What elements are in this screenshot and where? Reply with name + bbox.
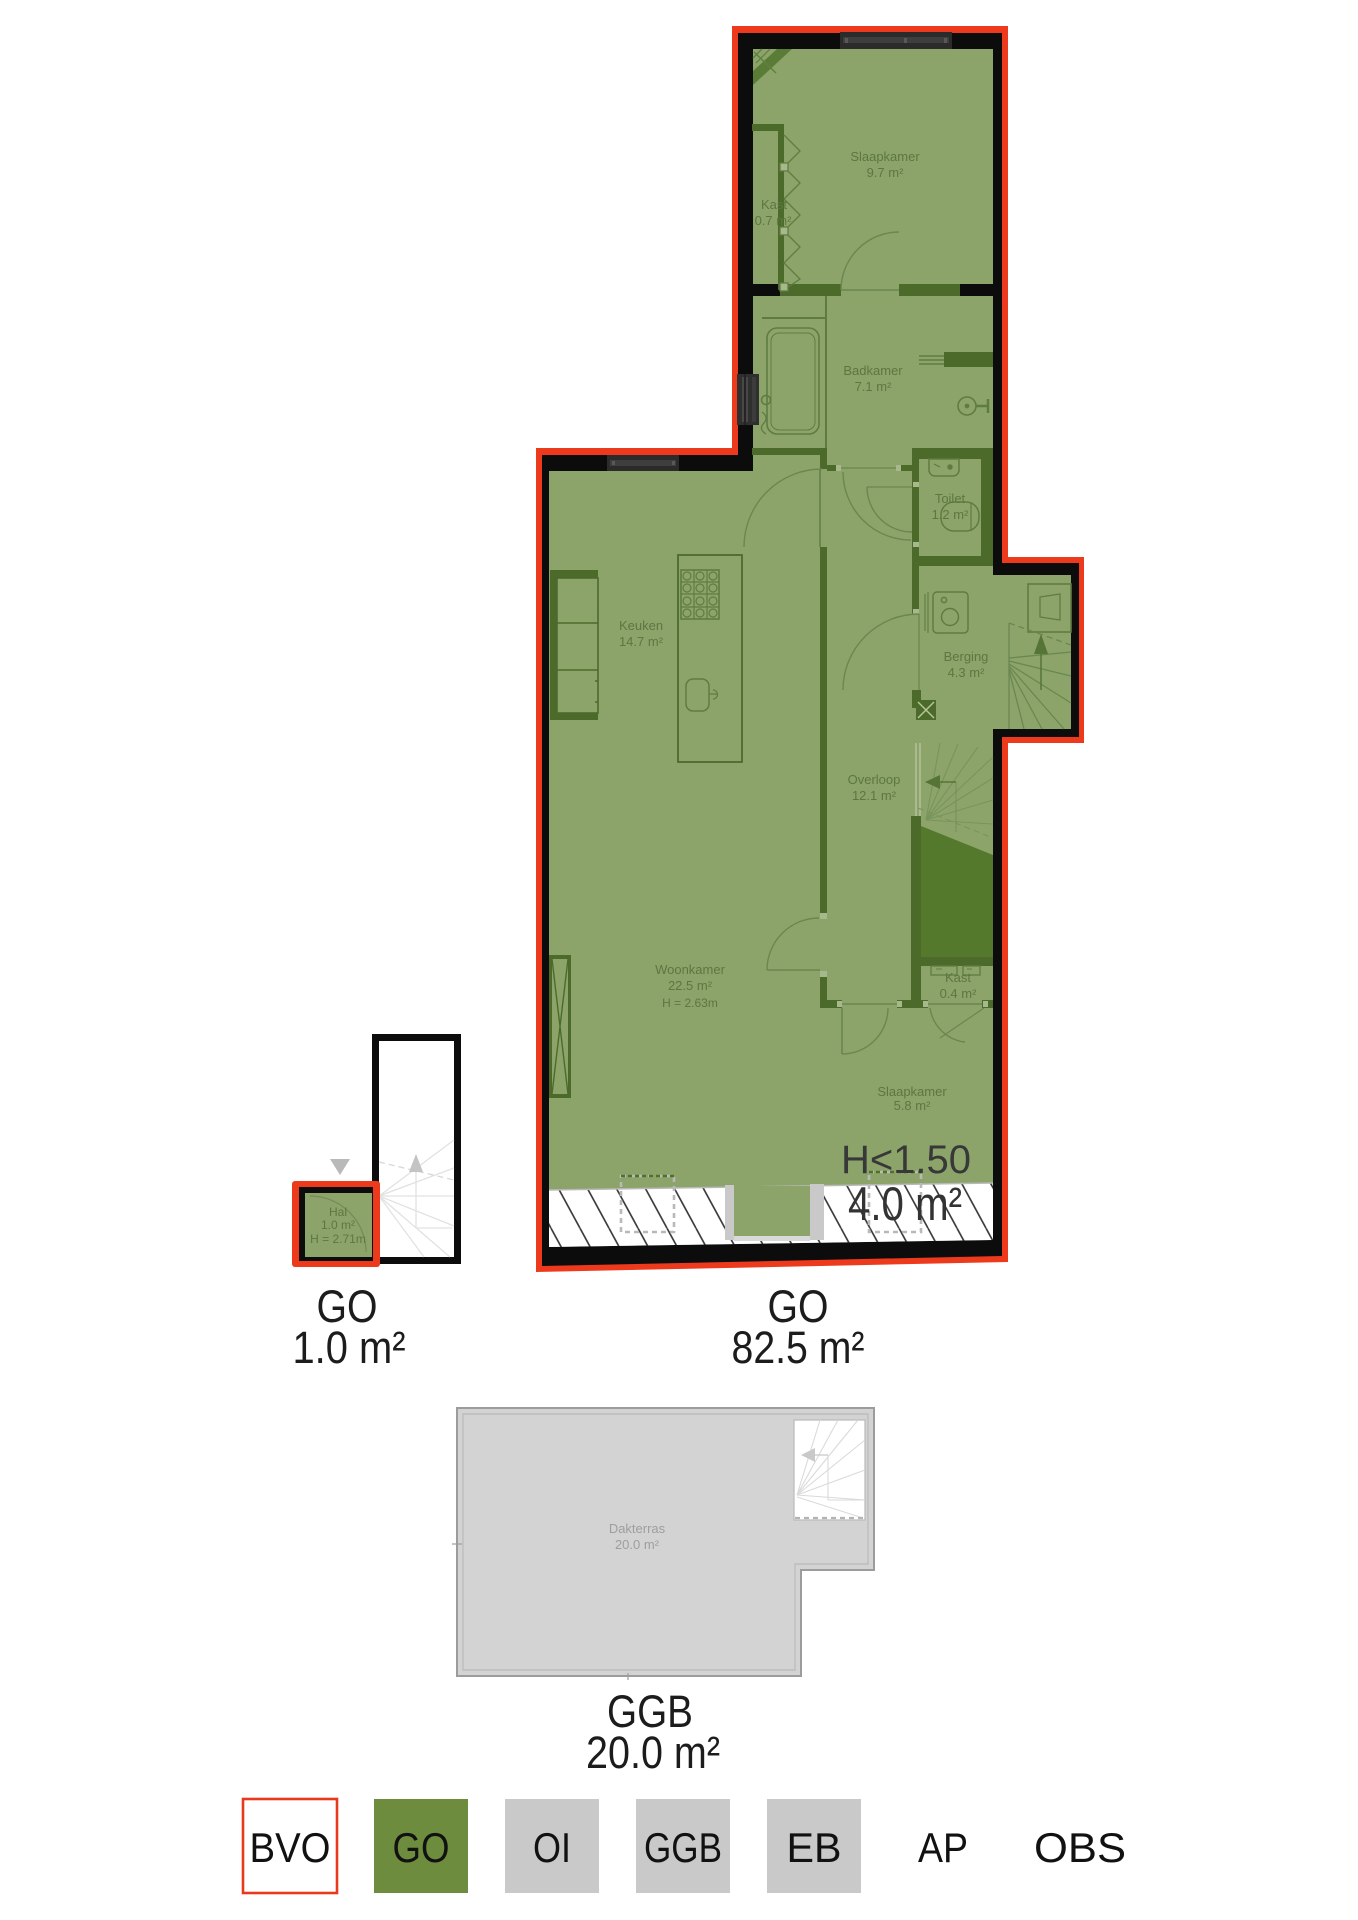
svg-text:Kast: Kast: [761, 197, 787, 212]
svg-text:4.3 m²: 4.3 m²: [948, 665, 986, 680]
svg-text:1.0 m²: 1.0 m²: [293, 1322, 406, 1373]
svg-text:OBS: OBS: [1034, 1824, 1126, 1871]
svg-text:GO: GO: [393, 1824, 450, 1871]
svg-text:Berging: Berging: [944, 649, 989, 664]
svg-text:Slaapkamer: Slaapkamer: [877, 1084, 947, 1099]
svg-text:14.7 m²: 14.7 m²: [619, 634, 664, 649]
svg-text:22.5 m²: 22.5 m²: [668, 978, 713, 993]
svg-text:4.0 m²: 4.0 m²: [848, 1177, 962, 1230]
svg-text:BVO: BVO: [250, 1824, 331, 1871]
svg-text:EB: EB: [787, 1824, 842, 1871]
svg-text:20.0 m²: 20.0 m²: [586, 1727, 720, 1778]
svg-text:H = 2.71m: H = 2.71m: [310, 1232, 366, 1246]
svg-text:7.1 m²: 7.1 m²: [855, 379, 893, 394]
svg-text:1.2 m²: 1.2 m²: [932, 507, 970, 522]
svg-text:Badkamer: Badkamer: [843, 363, 903, 378]
svg-text:Woonkamer: Woonkamer: [655, 962, 726, 977]
svg-text:0.7 m²: 0.7 m²: [755, 213, 793, 228]
svg-text:1.0 m²: 1.0 m²: [321, 1218, 355, 1232]
svg-text:Toilet: Toilet: [935, 491, 966, 506]
svg-text:Kast: Kast: [945, 970, 971, 985]
svg-text:20.0 m²: 20.0 m²: [615, 1537, 660, 1552]
svg-text:H = 2.63m: H = 2.63m: [662, 996, 718, 1010]
svg-text:GGB: GGB: [644, 1824, 722, 1871]
svg-text:OI: OI: [533, 1824, 571, 1871]
svg-text:Dakterras: Dakterras: [609, 1521, 666, 1536]
svg-text:AP: AP: [918, 1824, 968, 1871]
svg-text:12.1 m²: 12.1 m²: [852, 788, 897, 803]
svg-text:Overloop: Overloop: [848, 772, 901, 787]
svg-text:0.4 m²: 0.4 m²: [940, 986, 978, 1001]
svg-text:H<1.50: H<1.50: [841, 1138, 971, 1182]
svg-text:82.5 m²: 82.5 m²: [732, 1322, 865, 1373]
svg-text:Keuken: Keuken: [619, 618, 663, 633]
svg-text:Hal: Hal: [329, 1205, 347, 1219]
svg-text:5.8 m²: 5.8 m²: [894, 1098, 932, 1113]
svg-text:Slaapkamer: Slaapkamer: [850, 149, 920, 164]
svg-text:9.7 m²: 9.7 m²: [867, 165, 905, 180]
